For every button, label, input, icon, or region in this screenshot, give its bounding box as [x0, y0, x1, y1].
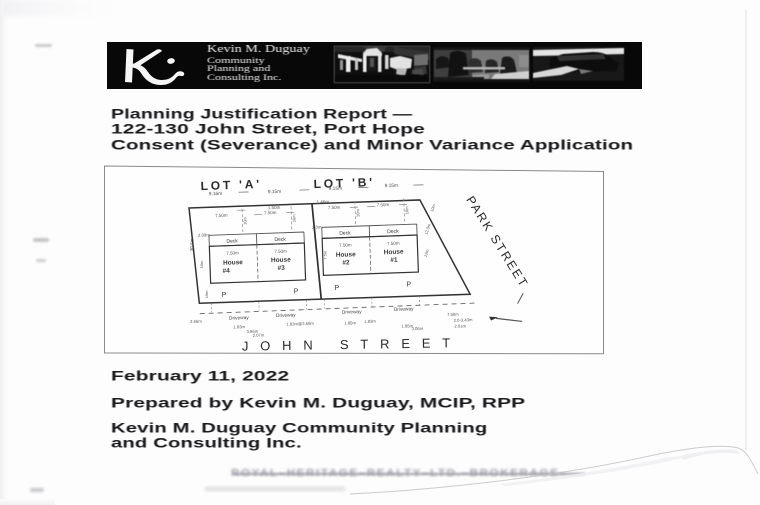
- svg-text:10m: 10m: [404, 206, 409, 215]
- svg-text:#3: #3: [277, 265, 285, 272]
- svg-text:9.15m: 9.15m: [329, 186, 343, 192]
- svg-text:7.5m: 7.5m: [323, 250, 328, 260]
- svg-text:1.83m: 1.83m: [364, 319, 376, 324]
- svg-text:House: House: [271, 256, 291, 264]
- svg-text:1.83m@3.66m: 1.83m@3.66m: [286, 321, 314, 327]
- svg-text:7.50m: 7.50m: [274, 249, 287, 254]
- svg-text:Driveway: Driveway: [342, 309, 363, 316]
- svg-text:#1: #1: [390, 257, 398, 264]
- svg-text:30.5m: 30.5m: [189, 238, 194, 251]
- svg-text:1.83m: 1.83m: [233, 324, 245, 329]
- svg-text:Driveway: Driveway: [276, 312, 297, 319]
- svg-text:House: House: [336, 251, 356, 259]
- svg-text:1.85m: 1.85m: [344, 320, 356, 325]
- svg-text:7.50m: 7.50m: [328, 205, 341, 210]
- svg-text:#2: #2: [342, 259, 350, 266]
- svg-text:10m: 10m: [242, 216, 247, 225]
- svg-text:Deck: Deck: [339, 230, 351, 236]
- svg-text:Deck: Deck: [387, 229, 399, 235]
- svg-text:16m: 16m: [199, 260, 204, 268]
- svg-text:2.07m: 2.07m: [253, 332, 265, 337]
- svg-text:2.0m: 2.0m: [312, 224, 322, 229]
- svg-text:7.50m: 7.50m: [226, 250, 239, 255]
- svg-text:7.50m: 7.50m: [215, 213, 228, 218]
- svg-text:LOT 'A': LOT 'A': [200, 177, 262, 193]
- svg-text:P: P: [222, 292, 227, 299]
- svg-text:2.09m: 2.09m: [198, 232, 210, 237]
- svg-text:9.15m: 9.15m: [385, 183, 399, 189]
- svg-text:7.50m: 7.50m: [264, 210, 277, 215]
- svg-text:P: P: [334, 285, 339, 292]
- svg-text:#4: #4: [222, 268, 230, 275]
- svg-text:2.01m: 2.01m: [454, 323, 466, 328]
- svg-text:Driveway: Driveway: [229, 315, 250, 322]
- svg-text:7.50m: 7.50m: [447, 312, 459, 317]
- svg-text:House: House: [223, 259, 243, 267]
- svg-text:Deck: Deck: [226, 238, 238, 244]
- svg-text:3.66m: 3.66m: [190, 319, 202, 324]
- svg-text:LOT 'B': LOT 'B': [313, 175, 375, 191]
- svg-text:P: P: [294, 288, 299, 295]
- svg-text:1.46m: 1.46m: [317, 199, 330, 204]
- svg-text:16m: 16m: [204, 290, 209, 298]
- svg-text:P: P: [406, 281, 411, 288]
- svg-text:Deck: Deck: [274, 237, 286, 243]
- svg-text:10m: 10m: [291, 214, 296, 223]
- svg-text:9.16m: 9.16m: [209, 191, 223, 197]
- svg-text:9.15m: 9.15m: [268, 189, 282, 195]
- svg-text:1.50m: 1.50m: [268, 205, 281, 210]
- svg-text:7.50m: 7.50m: [339, 242, 352, 247]
- svg-text:7.50m: 7.50m: [377, 202, 390, 207]
- svg-text:2.0-3.43m: 2.0-3.43m: [454, 317, 474, 323]
- svg-text:Driveway: Driveway: [394, 306, 415, 313]
- svg-text:3.06m: 3.06m: [411, 326, 423, 331]
- svg-text:10m: 10m: [355, 208, 360, 217]
- svg-text:7.50m: 7.50m: [387, 241, 400, 246]
- svg-text:House: House: [384, 249, 404, 257]
